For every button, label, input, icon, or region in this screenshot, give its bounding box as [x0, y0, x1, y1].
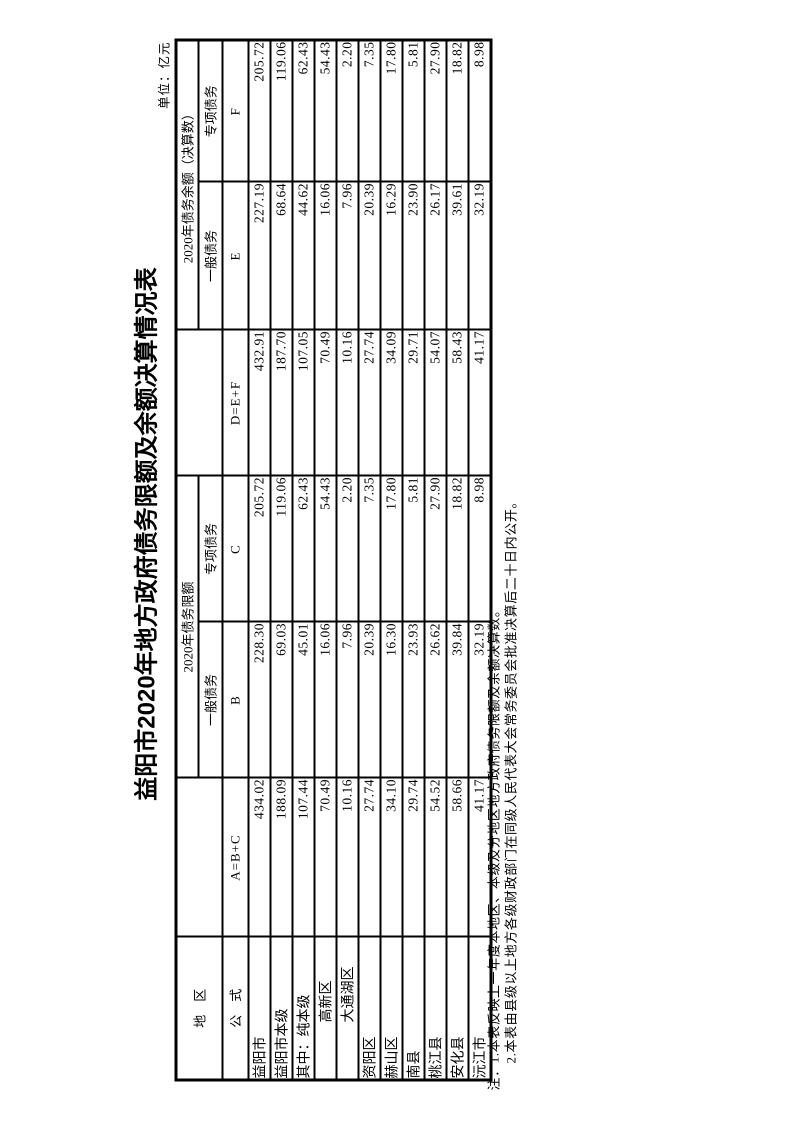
total-balance-cell: 54.07	[424, 329, 446, 475]
table-row: 其中：纯本级107.4445.0162.43107.0544.6262.43	[292, 39, 314, 1079]
scanned-document-page: 益阳市2020年地方政府债务限额及余额决算情况表 单位：亿元 地 区 2020年…	[0, 0, 793, 1122]
header-group-limit: 2020年债务限额	[176, 475, 198, 777]
header-general-debt-limit: 一般债务	[198, 622, 222, 778]
formula-general-balance: E	[222, 181, 248, 329]
formula-total-balance: D=E+F	[222, 329, 248, 475]
general-balance-cell: 16.29	[380, 181, 402, 329]
table-row: 益阳市434.02228.30205.72432.91227.19205.72	[248, 39, 270, 1079]
region-cell: 南县	[402, 937, 424, 1080]
total-balance-cell: 41.17	[468, 329, 491, 475]
total-limit-cell: 70.49	[314, 778, 336, 937]
general-limit-cell: 16.06	[314, 622, 336, 778]
general-limit-cell: 45.01	[292, 622, 314, 778]
total-limit-cell: 54.52	[424, 778, 446, 937]
special-balance-cell: 5.81	[402, 39, 424, 181]
header-total-limit-spacer	[176, 778, 222, 937]
debt-limit-balance-table: 地 区 2020年债务限额 2020年债务余额（决算数） 一般债务 专项债务 一…	[174, 38, 492, 1081]
general-limit-cell: 26.62	[424, 622, 446, 778]
region-cell: 大通湖区	[336, 937, 358, 1080]
special-balance-cell: 8.98	[468, 39, 491, 181]
header-group-balance: 2020年债务余额（决算数）	[176, 39, 198, 329]
general-balance-cell: 16.06	[314, 181, 336, 329]
total-balance-cell: 34.09	[380, 329, 402, 475]
header-general-debt-balance: 一般债务	[198, 181, 222, 329]
formula-general-limit: B	[222, 622, 248, 778]
special-balance-cell: 62.43	[292, 39, 314, 181]
general-balance-cell: 227.19	[248, 181, 270, 329]
special-limit-cell: 5.81	[402, 475, 424, 621]
table-row: 赫山区34.1016.3017.8034.0916.2917.80	[380, 39, 402, 1079]
general-limit-cell: 7.96	[336, 622, 358, 778]
total-limit-cell: 34.10	[380, 778, 402, 937]
total-limit-cell: 434.02	[248, 778, 270, 937]
special-balance-cell: 119.06	[270, 39, 292, 181]
header-special-debt-limit: 专项债务	[198, 475, 222, 621]
total-limit-cell: 10.16	[336, 778, 358, 937]
general-balance-cell: 26.17	[424, 181, 446, 329]
formula-total-limit: A=B+C	[222, 778, 248, 937]
footnote-2: 2.本表由县级以上地方各级财政部门在同级人民代表大会常务委员会批准决算后二十日内…	[503, 494, 520, 1090]
special-limit-cell: 205.72	[248, 475, 270, 621]
total-balance-cell: 27.74	[358, 329, 380, 475]
general-balance-cell: 7.96	[336, 181, 358, 329]
table-row: 桃江县54.5226.6227.9054.0726.1727.90	[424, 39, 446, 1079]
document-title: 益阳市2020年地方政府债务限额及余额决算情况表	[126, 0, 161, 1122]
total-balance-cell: 10.16	[336, 329, 358, 475]
total-limit-cell: 58.66	[446, 778, 468, 937]
footnotes: 注：1.本表反映上一年度本地区、本级及分地区地方政府债务限额及余额决算数。 2.…	[486, 494, 519, 1090]
special-limit-cell: 7.35	[358, 475, 380, 621]
special-balance-cell: 7.35	[358, 39, 380, 181]
general-limit-cell: 69.03	[270, 622, 292, 778]
footnote-1: 注：1.本表反映上一年度本地区、本级及分地区地方政府债务限额及余额决算数。	[486, 494, 503, 1090]
special-limit-cell: 18.82	[446, 475, 468, 621]
total-balance-cell: 29.71	[402, 329, 424, 475]
general-limit-cell: 16.30	[380, 622, 402, 778]
table-body: 益阳市434.02228.30205.72432.91227.19205.72益…	[248, 39, 491, 1079]
total-balance-cell: 70.49	[314, 329, 336, 475]
special-limit-cell: 27.90	[424, 475, 446, 621]
general-balance-cell: 44.62	[292, 181, 314, 329]
general-balance-cell: 39.61	[446, 181, 468, 329]
region-cell: 高新区	[314, 937, 336, 1080]
special-balance-cell: 2.20	[336, 39, 358, 181]
region-cell: 桃江县	[424, 937, 446, 1080]
special-balance-cell: 27.90	[424, 39, 446, 181]
total-balance-cell: 107.05	[292, 329, 314, 475]
total-balance-cell: 58.43	[446, 329, 468, 475]
table-row: 安化县58.6639.8418.8258.4339.6118.82	[446, 39, 468, 1079]
special-limit-cell: 119.06	[270, 475, 292, 621]
region-cell: 益阳市本级	[270, 937, 292, 1080]
formula-special-balance: F	[222, 39, 248, 181]
unit-label: 单位：亿元	[153, 41, 172, 109]
table-header: 地 区 2020年债务限额 2020年债务余额（决算数） 一般债务 专项债务 一…	[176, 39, 248, 1079]
table-row: 益阳市本级188.0969.03119.06187.7068.64119.06	[270, 39, 292, 1079]
special-limit-cell: 62.43	[292, 475, 314, 621]
general-balance-cell: 68.64	[270, 181, 292, 329]
table-row: 南县29.7423.935.8129.7123.905.81	[402, 39, 424, 1079]
region-cell: 安化县	[446, 937, 468, 1080]
table-row: 大通湖区10.167.962.2010.167.962.20	[336, 39, 358, 1079]
general-limit-cell: 20.39	[358, 622, 380, 778]
region-cell: 其中：纯本级	[292, 937, 314, 1080]
table-row: 高新区70.4916.0654.4370.4916.0654.43	[314, 39, 336, 1079]
special-limit-cell: 54.43	[314, 475, 336, 621]
header-total-balance-spacer	[176, 329, 222, 475]
special-limit-cell: 17.80	[380, 475, 402, 621]
special-limit-cell: 2.20	[336, 475, 358, 621]
region-cell: 赫山区	[380, 937, 402, 1080]
table-row: 资阳区27.7420.397.3527.7420.397.35	[358, 39, 380, 1079]
total-limit-cell: 188.09	[270, 778, 292, 937]
general-balance-cell: 20.39	[358, 181, 380, 329]
total-limit-cell: 107.44	[292, 778, 314, 937]
total-limit-cell: 29.74	[402, 778, 424, 937]
region-cell: 益阳市	[248, 937, 270, 1080]
formula-special-limit: C	[222, 475, 248, 621]
region-cell: 资阳区	[358, 937, 380, 1080]
total-balance-cell: 432.91	[248, 329, 270, 475]
general-limit-cell: 228.30	[248, 622, 270, 778]
header-formula: 公 式	[222, 937, 248, 1080]
general-balance-cell: 23.90	[402, 181, 424, 329]
rotated-landscape-sheet: 益阳市2020年地方政府债务限额及余额决算情况表 单位：亿元 地 区 2020年…	[0, 0, 793, 1122]
special-balance-cell: 18.82	[446, 39, 468, 181]
header-region: 地 区	[176, 937, 222, 1080]
total-balance-cell: 187.70	[270, 329, 292, 475]
general-limit-cell: 23.93	[402, 622, 424, 778]
header-special-debt-balance: 专项债务	[198, 39, 222, 181]
special-balance-cell: 17.80	[380, 39, 402, 181]
special-balance-cell: 205.72	[248, 39, 270, 181]
general-balance-cell: 32.19	[468, 181, 491, 329]
special-balance-cell: 54.43	[314, 39, 336, 181]
total-limit-cell: 27.74	[358, 778, 380, 937]
general-limit-cell: 39.84	[446, 622, 468, 778]
